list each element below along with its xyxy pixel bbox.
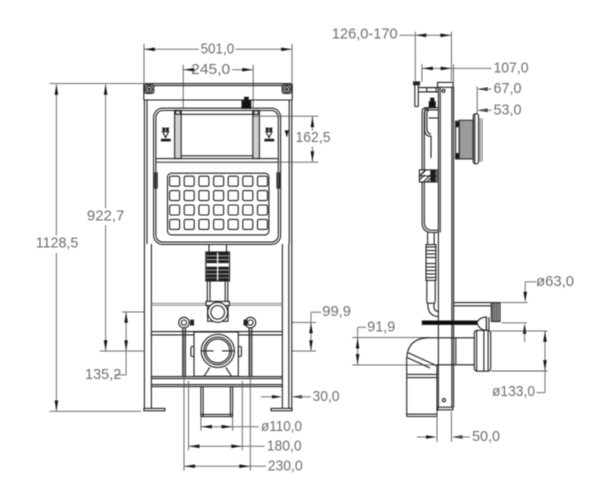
svg-text:501,0: 501,0 xyxy=(201,41,235,58)
svg-text:162,5: 162,5 xyxy=(296,129,331,146)
svg-text:ø110,0: ø110,0 xyxy=(261,418,302,435)
svg-text:99,9: 99,9 xyxy=(322,303,351,320)
svg-text:ø63,0: ø63,0 xyxy=(536,273,574,290)
svg-text:135,2: 135,2 xyxy=(85,366,121,383)
svg-text:91,9: 91,9 xyxy=(367,319,395,336)
svg-text:67,0: 67,0 xyxy=(494,80,522,97)
svg-text:922,7: 922,7 xyxy=(87,207,125,224)
svg-text:1128,5: 1128,5 xyxy=(36,235,79,252)
svg-text:126,0-170: 126,0-170 xyxy=(332,26,398,43)
svg-text:230,0: 230,0 xyxy=(268,457,303,474)
svg-text:245,0: 245,0 xyxy=(191,61,230,78)
svg-text:53,0: 53,0 xyxy=(494,101,522,118)
svg-text:50,0: 50,0 xyxy=(472,428,500,445)
svg-text:180,0: 180,0 xyxy=(267,438,302,455)
svg-text:107,0: 107,0 xyxy=(494,60,529,77)
svg-text:ø133,0: ø133,0 xyxy=(492,383,535,400)
svg-text:30,0: 30,0 xyxy=(313,388,340,405)
